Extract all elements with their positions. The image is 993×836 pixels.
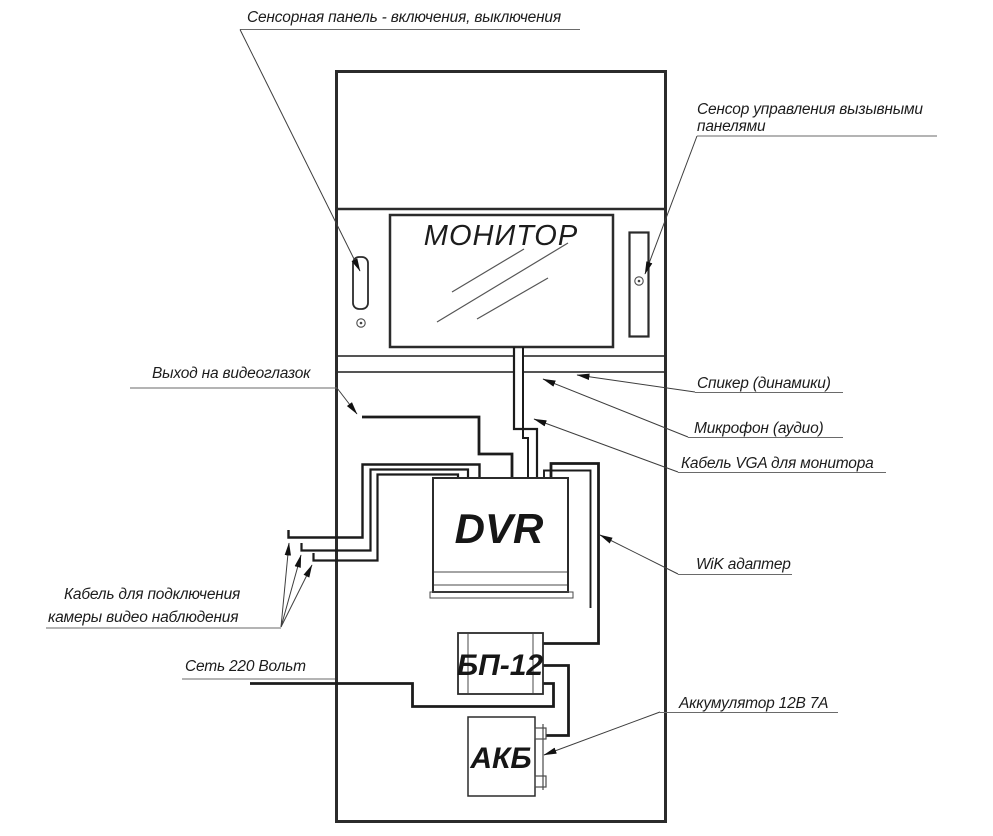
wik-adapter-cable xyxy=(543,464,599,644)
label-speaker: Спикер (динамики) xyxy=(697,375,831,392)
label-wik-adapter: WiK адаптер xyxy=(696,556,791,573)
leader-sensor-panel xyxy=(240,30,360,272)
label-battery-note: Аккумулятор 12В 7А xyxy=(678,695,828,712)
monitor-label: МОНИТОР xyxy=(424,220,578,252)
call-panel-sensor xyxy=(630,233,649,337)
psu-to-battery-cable xyxy=(543,666,569,736)
leader-camera-cable xyxy=(281,543,312,627)
cabinet-outline xyxy=(337,72,666,822)
label-vga-cable: Кабель VGA для монитора xyxy=(681,455,874,472)
label-mains-220: Сеть 220 Вольт xyxy=(185,658,306,675)
label-camera-cable-2: камеры видео наблюдения xyxy=(48,609,238,626)
monitor-shine-lines xyxy=(437,243,568,322)
leader-battery-note xyxy=(544,712,660,755)
dvr-label: DVR xyxy=(455,505,544,552)
leader-speaker xyxy=(577,375,695,392)
leader-peephole xyxy=(337,388,357,414)
battery-label: АКБ xyxy=(469,742,531,775)
diagram-canvas: МОНИТОР DVR xyxy=(0,0,993,836)
label-call-panel-sensor-2: панелями xyxy=(697,118,766,135)
speaker-grille xyxy=(337,355,665,373)
psu-label: БП-12 xyxy=(457,649,543,682)
power-touch-sensor xyxy=(353,257,368,327)
label-camera-cable-1: Кабель для подключения xyxy=(64,586,240,603)
intercom-cabinet-diagram: МОНИТОР DVR xyxy=(0,0,993,836)
label-sensor-panel: Сенсорная панель - включения, выключения xyxy=(247,9,561,26)
leader-call-panel-sensor xyxy=(645,136,697,274)
label-peephole: Выход на видеоглазок xyxy=(152,365,311,382)
mains-cable xyxy=(250,684,554,707)
label-call-panel-sensor-1: Сенсор управления вызывными xyxy=(697,101,923,118)
label-microphone: Микрофон (аудио) xyxy=(694,420,823,437)
